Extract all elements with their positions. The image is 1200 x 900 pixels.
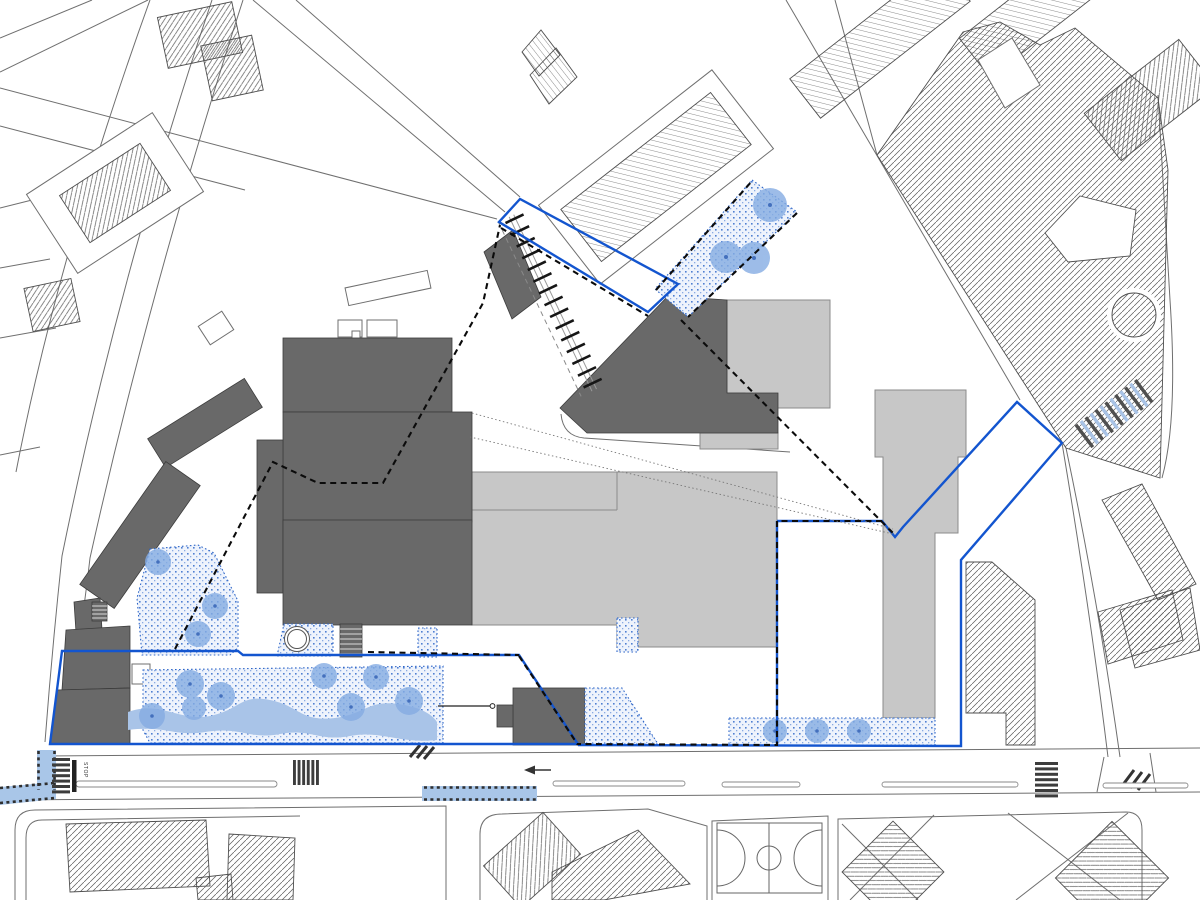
outline-building — [345, 270, 431, 305]
crosswalks — [52, 758, 1058, 797]
hatched-circle — [1112, 293, 1156, 337]
context-building — [24, 278, 80, 331]
dark-building — [283, 412, 472, 522]
court-arc — [717, 830, 745, 886]
basketball-court — [717, 823, 822, 893]
dark-building — [257, 440, 283, 593]
site-plan-canvas: STOP — [0, 0, 1200, 900]
lane-marking — [882, 782, 1018, 787]
roof-structure — [367, 320, 397, 337]
court-arc — [794, 830, 822, 886]
dark-building-slab — [148, 378, 263, 467]
outline-building — [198, 311, 233, 345]
context-building — [227, 834, 295, 900]
light-building-annex — [700, 433, 778, 449]
dark-building — [50, 688, 130, 744]
context-building — [196, 874, 233, 900]
dark-building — [283, 520, 472, 625]
blue-paved-paths — [0, 750, 537, 805]
green-area — [617, 618, 638, 652]
light-building-tower — [875, 390, 966, 718]
dark-building — [62, 626, 130, 690]
survey-point — [490, 704, 495, 709]
bus-stop-bar — [72, 760, 77, 792]
context-building — [1102, 484, 1196, 600]
tree-well — [285, 627, 310, 652]
site-plan-drawing: STOP — [0, 0, 1200, 900]
context-building — [1055, 821, 1168, 900]
green-area-strip — [729, 718, 935, 745]
crosswalk-right — [1035, 762, 1058, 797]
bus-stop-label: STOP — [82, 762, 88, 778]
dark-building — [497, 705, 513, 727]
context-building — [66, 820, 210, 892]
lane-marking — [553, 781, 685, 786]
lane-marking — [76, 781, 277, 787]
context-building — [552, 830, 690, 900]
dark-building — [283, 338, 452, 412]
context-hatched-buildings — [24, 0, 1200, 900]
direction-arrow-head — [524, 766, 535, 775]
context-building — [966, 562, 1035, 745]
tree — [182, 696, 206, 720]
light-building-north — [727, 300, 830, 408]
green-area — [585, 688, 658, 744]
crosswalk-center — [293, 760, 319, 785]
lane-marking — [722, 782, 800, 787]
context-building — [842, 821, 944, 900]
lane-marking — [1103, 783, 1188, 788]
context-building — [201, 35, 264, 101]
